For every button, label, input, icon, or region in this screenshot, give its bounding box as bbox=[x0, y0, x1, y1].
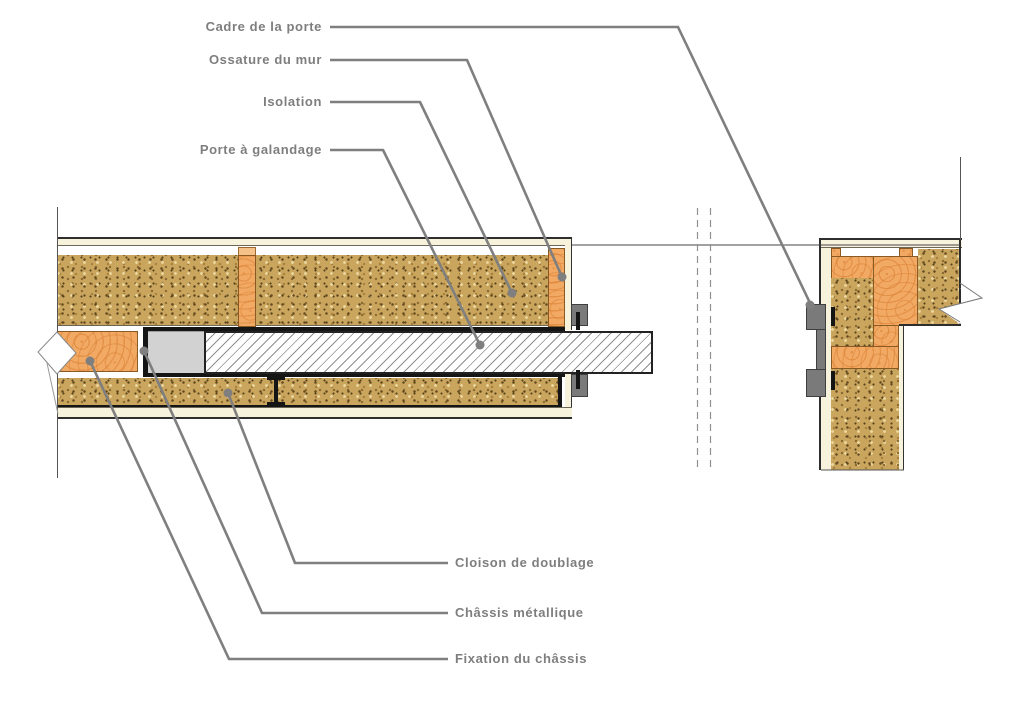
door-frame-tab-bottom bbox=[806, 369, 826, 397]
callout-porte-a-galandage: Porte à galandage bbox=[200, 142, 322, 158]
wall-stud bbox=[238, 255, 256, 327]
callout-ossature-du-mur: Ossature du mur bbox=[209, 52, 322, 68]
rightwall-post-lower bbox=[873, 325, 899, 347]
insulation-upper bbox=[57, 255, 548, 325]
rightwall-noggin-wood bbox=[831, 346, 899, 369]
sliding-door-slab bbox=[204, 331, 653, 374]
fixing-batten-wood bbox=[57, 331, 138, 372]
rightwall-top-board bbox=[819, 240, 962, 248]
insulation-bottom-edge bbox=[57, 325, 565, 326]
callout-chassis-metallique: Châssis métallique bbox=[455, 605, 584, 621]
wall-bottom-plasterboard bbox=[57, 407, 572, 417]
rightwall-insulation-lower bbox=[831, 369, 899, 470]
callout-fixation-du-chassis: Fixation du châssis bbox=[455, 651, 587, 667]
rightwall-right-edge bbox=[959, 240, 961, 324]
bracket-pin bbox=[576, 312, 580, 330]
lining-end-cap bbox=[558, 377, 562, 407]
rightwall-insulation-upper bbox=[831, 278, 873, 346]
rightwall-inner-board bbox=[899, 324, 904, 470]
frame-fixing-pin bbox=[831, 371, 835, 390]
wall-bottom-outline bbox=[57, 417, 572, 419]
rightwall-insulation-arm bbox=[918, 249, 961, 325]
frame-fixing-pin bbox=[831, 307, 835, 326]
rightwall-corner-post bbox=[873, 256, 918, 326]
callout-cadre-de-la-porte: Cadre de la porte bbox=[206, 19, 322, 35]
diagram-canvas: Cadre de la porte Ossature du mur Isolat… bbox=[0, 0, 1024, 724]
metal-frame-pocket bbox=[148, 331, 204, 373]
bracket-pin bbox=[576, 370, 580, 389]
rightwall-arm-bottom-line bbox=[899, 324, 961, 326]
callout-cloison-de-doublage: Cloison de doublage bbox=[455, 555, 594, 571]
wall-top-plasterboard bbox=[57, 239, 572, 246]
callout-isolation: Isolation bbox=[263, 94, 322, 110]
insulation-lower bbox=[57, 378, 558, 405]
door-frame-web bbox=[816, 329, 826, 370]
wall-end-stud bbox=[548, 248, 565, 327]
rightwall-plate-wood bbox=[831, 256, 874, 279]
door-frame-tab-top bbox=[806, 304, 826, 330]
ibeam-bottom-flange bbox=[267, 402, 285, 406]
